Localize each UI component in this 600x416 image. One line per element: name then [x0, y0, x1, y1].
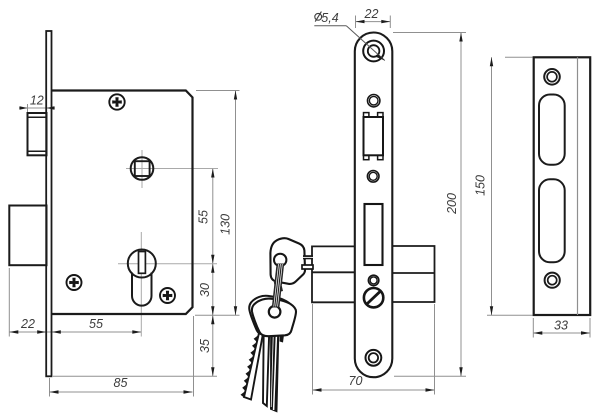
- svg-text:150: 150: [474, 175, 488, 196]
- svg-text:55: 55: [197, 210, 211, 224]
- svg-text:85: 85: [114, 376, 128, 390]
- svg-text:33: 33: [554, 319, 568, 333]
- svg-text:22: 22: [20, 317, 35, 331]
- svg-text:70: 70: [349, 374, 363, 388]
- svg-text:5,4: 5,4: [321, 11, 338, 25]
- svg-text:12: 12: [30, 94, 44, 108]
- svg-text:35: 35: [198, 339, 212, 353]
- svg-text:130: 130: [219, 214, 233, 235]
- svg-text:22: 22: [364, 7, 379, 21]
- svg-text:200: 200: [445, 193, 459, 215]
- svg-text:55: 55: [89, 317, 103, 331]
- svg-text:30: 30: [198, 283, 212, 297]
